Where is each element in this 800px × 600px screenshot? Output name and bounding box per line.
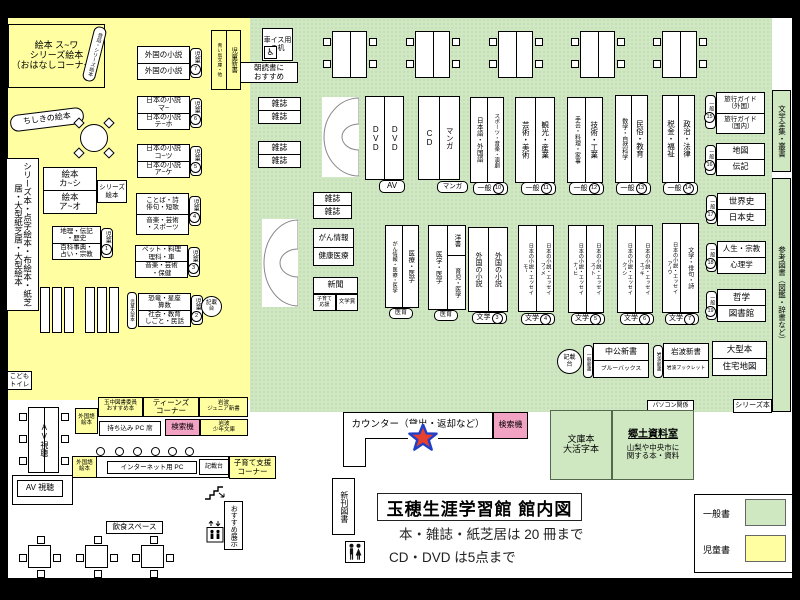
label-lit5: 文学5 bbox=[571, 313, 605, 325]
gaikokugo-ehon-2: 外国語 絵本 bbox=[72, 456, 97, 478]
iwanami-shelf-cell-2: 岩波ブックレット bbox=[664, 360, 708, 377]
label-av: AV bbox=[379, 180, 405, 193]
bunko-shelf: 文庫本 大活字本 bbox=[550, 410, 612, 480]
chair bbox=[94, 536, 102, 544]
ehon-kashi-shelf: 絵本 カ~シ絵本 ア~オ bbox=[43, 167, 97, 214]
shelf-g13-cell-2: 民俗・教育 bbox=[631, 96, 647, 182]
map-biography-shelf-cell-1: 地図 bbox=[717, 144, 764, 159]
kamishibai-shelf: シリーズ本・点字絵本・布絵本・紙芝居・大型紙芝居・大型絵本 bbox=[6, 158, 39, 311]
chair bbox=[406, 38, 414, 46]
shelf-g12-cell-1: 手芸・料理・家事 bbox=[568, 98, 585, 182]
label-g11: 一般11 bbox=[521, 182, 556, 195]
chair bbox=[653, 60, 661, 68]
eating-table-3 bbox=[141, 545, 164, 568]
bungakusho-box: 文学賞 bbox=[336, 294, 358, 311]
location-star bbox=[408, 424, 438, 452]
search-machine-1: 検索機 bbox=[493, 412, 528, 439]
lit5-shelf-cell-2: 日本の小説・エッセイ ス~ト bbox=[586, 226, 604, 312]
tab-jido-ogata: 児童大型本 bbox=[127, 292, 137, 329]
dvd-shelf-cell-2: DVD bbox=[384, 97, 403, 179]
legend-children-label: 児童書 bbox=[703, 543, 730, 556]
jido-shinsho-shelf-cell-1: 青い鳥文庫・他 bbox=[212, 31, 226, 89]
kodomo-toilet: こども トイレ bbox=[7, 371, 32, 390]
magazine-shelf-1: 雑誌雑誌 bbox=[258, 97, 301, 124]
tab-iwanami-shinsho: 岩波新書 bbox=[653, 345, 663, 378]
mochikomi-pc-box: 持ち込み PC 席 bbox=[99, 421, 161, 436]
shelf-g13-cell-1: 数学・自然科学 bbox=[616, 96, 631, 182]
newspaper-box: 新聞 bbox=[313, 277, 358, 294]
osusume-tenji-box: おすすめ展示 bbox=[224, 501, 243, 550]
map-biography-shelf-cell-2: 伝記 bbox=[717, 159, 764, 175]
label-g14: 一般14 bbox=[663, 182, 698, 195]
lit5-shelf-cell-1: 日本の小説・エッセイ ナ~ヒ bbox=[569, 226, 586, 312]
jp-novels-ma: 日本の小説 マ~日本の小説 テ~ホ bbox=[137, 96, 190, 130]
eating-table-1 bbox=[28, 545, 51, 568]
kosodate-shien-box: 子育て支援 コーナー bbox=[229, 456, 276, 479]
travel-guide-shelf: 旅行ガイド （外国）旅行ガイド （国内） bbox=[716, 92, 765, 134]
crescent-shelf-2 bbox=[262, 219, 298, 307]
elevator-icon bbox=[206, 519, 224, 543]
stairs-icon bbox=[204, 484, 226, 500]
philosophy-shelf: 哲学図書館 bbox=[717, 289, 766, 322]
history-shelf-cell-2: 日本史 bbox=[718, 209, 765, 225]
iwanami-shelf: 岩波新書岩波ブックレット bbox=[663, 343, 709, 378]
kyodo-room: 郷土資料室山梨や中央市に 関する本・資料 bbox=[612, 410, 694, 480]
pet-shelf-cell-1: ペット・料理 理科・車 bbox=[136, 246, 187, 261]
jp-novels-ma-cell-1: 日本の小説 マ~ bbox=[138, 97, 189, 113]
chair bbox=[699, 60, 707, 68]
chair bbox=[94, 570, 102, 578]
chair bbox=[103, 147, 114, 158]
tab-jido-5: 児童5 bbox=[190, 146, 202, 176]
life-religion-shelf-cell-2: 心理学 bbox=[718, 257, 765, 273]
lit4-shelf-cell-1: 日本の小説・エッセイ モ~ bbox=[519, 226, 536, 311]
geo-dictionary-shelf: 地理・伝記 ・歴史百科事典・ 占い・宗教 bbox=[52, 226, 101, 260]
chair bbox=[406, 60, 414, 68]
chair bbox=[150, 536, 158, 544]
chuko-shelf-cell-1: 中公新書 bbox=[594, 344, 648, 360]
lit4-shelf: 日本の小説・エッセイ モ~日本の小説・エッセイ フ~メ bbox=[518, 225, 554, 312]
shelf-g11-cell-1: 芸術・美術 bbox=[516, 98, 535, 182]
lit6-shelf: 日本の小説・エッセイ ク~シ日本の小説・エッセイ エ~キ bbox=[617, 225, 653, 313]
kotoba-shelf-cell-2: 音楽・芸術 ・スポーツ bbox=[137, 214, 188, 235]
tab-g17: 一般17 bbox=[706, 195, 717, 224]
tab-jido-3: 児童3 bbox=[188, 247, 200, 277]
map-title: 玉穂生涯学習館 館内図 bbox=[377, 493, 582, 521]
shelf-g14: 税金・福祉政治・法律 bbox=[662, 95, 695, 183]
jp-novels-ko-cell-2: 日本の小説 ア~ケ bbox=[138, 161, 189, 178]
legend-children-swatch bbox=[745, 535, 786, 562]
geo-dictionary-shelf-cell-2: 百科事典・ 占い・宗教 bbox=[53, 243, 100, 260]
stool-5 bbox=[168, 447, 177, 456]
lit6-shelf-cell-2: 日本の小説・エッセイ エ~キ bbox=[635, 226, 653, 312]
label-g12: 一般12 bbox=[569, 182, 604, 195]
lit6-shelf-cell-1: 日本の小説・エッセイ ク~シ bbox=[618, 226, 635, 312]
lit4-shelf-cell-2: 日本の小説・エッセイ フ~メ bbox=[536, 226, 554, 311]
jp-novels-ko: 日本の小説 コ~ツ日本の小説 ア~ケ bbox=[137, 144, 190, 178]
chair bbox=[37, 536, 45, 544]
chair bbox=[323, 38, 331, 46]
magazine-shelf-3-cell-1: 雑誌 bbox=[314, 193, 351, 205]
dinosaur-shelf: 恐竜・星座 算数社会・教育 しごと・民話 bbox=[138, 293, 191, 327]
toilet-icon-box bbox=[345, 541, 365, 563]
kisaidai-3: 記載台 bbox=[199, 459, 229, 475]
history-shelf: 世界史日本史 bbox=[717, 193, 766, 226]
lit3-shelf-cell-2: 外国の小説 bbox=[488, 228, 508, 311]
magazine-shelf-3: 雑誌雑誌 bbox=[313, 192, 352, 219]
philosophy-shelf-cell-2: 図書館 bbox=[718, 305, 765, 321]
tab-jido-6: 児童6 bbox=[190, 98, 202, 128]
lending-rule-cd-dvd: CD・DVD は5点まで bbox=[389, 546, 516, 566]
chair bbox=[103, 117, 114, 128]
chair bbox=[61, 457, 69, 465]
lending-rule-books: 本・雑誌・紙芝居は 20 冊まで bbox=[399, 523, 584, 543]
label-iiku-1: 医育 bbox=[389, 308, 413, 319]
cd-manga-shelf-cell-2: マンガ bbox=[439, 97, 460, 179]
chair bbox=[571, 38, 579, 46]
counter-ext bbox=[343, 438, 366, 467]
shelf-g14-cell-1: 税金・福祉 bbox=[663, 96, 678, 182]
label-manga: マンガ bbox=[437, 181, 468, 193]
chair bbox=[19, 554, 27, 562]
cd-manga-shelf: CDマンガ bbox=[418, 96, 460, 180]
jp-novels-ma-cell-2: 日本の小説 テ~ホ bbox=[138, 113, 189, 130]
label-lit4: 文学4 bbox=[521, 313, 555, 325]
chair bbox=[535, 38, 543, 46]
foreign-novels-children: 外国の小説外国の小説 bbox=[137, 46, 190, 80]
search-machine-2: 検索機 bbox=[165, 419, 200, 436]
lit3-shelf-cell-1: 外国の小説 bbox=[469, 228, 488, 311]
medical-shelf-1-cell-1: がん情報・医療・医学 bbox=[386, 226, 402, 307]
shelf-g11-cell-2: 観光・産業 bbox=[535, 98, 555, 182]
tab-ippan-shinsho: 一般新書 bbox=[583, 345, 593, 378]
life-religion-shelf-cell-1: 人生・宗教 bbox=[718, 242, 765, 257]
ehon-kashi-shelf-cell-2: 絵本 ア~オ bbox=[44, 190, 96, 213]
large-books-shelf-cell-1: 大型本 bbox=[713, 342, 766, 358]
shinkan-tosho-box: 新刊図書 bbox=[332, 478, 355, 535]
crescent-shelf-1 bbox=[322, 97, 359, 177]
shelf-g12-cell-2: 技術・工業 bbox=[585, 98, 603, 182]
iwanami-shonen-box: 岩波 少年文庫 bbox=[200, 419, 248, 436]
philosophy-shelf-cell-1: 哲学 bbox=[718, 290, 765, 305]
yosho-cell: 洋書 bbox=[447, 225, 466, 256]
legend-row-children: 児童書 bbox=[695, 535, 792, 565]
magazine-shelf-2-cell-1: 雑誌 bbox=[259, 142, 300, 154]
tab-jido-1: 児童1 bbox=[101, 228, 113, 258]
reading-table-1 bbox=[332, 31, 367, 78]
chair bbox=[489, 60, 497, 68]
jido-shinsho-shelf: 青い鳥文庫・他児童新書 bbox=[211, 30, 241, 90]
chuko-shelf: 中公新書ブルーバックス bbox=[593, 343, 649, 378]
map-biography-shelf: 地図伝記 bbox=[716, 143, 765, 176]
chair bbox=[535, 60, 543, 68]
chair bbox=[132, 554, 140, 562]
lit5-shelf: 日本の小説・エッセイ ナ~ヒ日本の小説・エッセイ ス~ト bbox=[568, 225, 604, 313]
tamachu-osusume-box: 玉中図書委員 おすすめ本 bbox=[98, 397, 143, 417]
shelf-g11: 芸術・美術観光・産業 bbox=[515, 97, 555, 183]
shelf-g10-cell-2: スポーツ・音楽・演劇 bbox=[487, 98, 504, 182]
magazine-shelf-3-cell-2: 雑誌 bbox=[314, 205, 351, 218]
series-ehon-box: シリーズ 絵本 bbox=[97, 180, 127, 203]
chair bbox=[53, 554, 61, 562]
geo-dictionary-shelf-cell-1: 地理・伝記 ・歴史 bbox=[53, 227, 100, 243]
shelf-block-5 bbox=[97, 287, 107, 333]
dinosaur-shelf-cell-1: 恐竜・星座 算数 bbox=[139, 294, 190, 310]
chair bbox=[653, 38, 661, 46]
medical-shelf-1: がん情報・医療・医学医療・医学 bbox=[385, 225, 419, 308]
pet-shelf: ペット・料理 理科・車音楽・芸術 ・保健 bbox=[135, 245, 188, 278]
chair bbox=[369, 60, 377, 68]
shelf-g10-cell-1: 日本語・外国語 bbox=[471, 98, 487, 182]
teens-corner-box: ティーンズ コーナー bbox=[143, 397, 199, 417]
chair bbox=[150, 570, 158, 578]
chair bbox=[73, 147, 84, 158]
chair bbox=[452, 60, 460, 68]
dvd-shelf: DVDDVD bbox=[365, 96, 404, 180]
tab-g15: 一般15 bbox=[705, 95, 716, 129]
chair bbox=[166, 554, 174, 562]
kisaidai-1: 記載 台 bbox=[201, 296, 222, 317]
dvd-shelf-cell-1: DVD bbox=[366, 97, 384, 179]
label-iiku-2: 医育 bbox=[434, 310, 458, 321]
shelf-g10: 日本語・外国語スポーツ・音楽・演劇 bbox=[470, 97, 504, 183]
library-floor-map: 絵本 ス~ワ シリーズ絵本 （おはなしコーナー）昔話・シリーズ絵本ちしきの絵本シ… bbox=[0, 0, 800, 600]
lit7-shelf-cell-2: 文学・俳句・詩 bbox=[680, 224, 698, 312]
kotoba-shelf-cell-1: ことば・詩 俳句・短歌 bbox=[137, 194, 188, 214]
chair bbox=[323, 60, 331, 68]
jido-shinsho-shelf-cell-2: 児童新書 bbox=[226, 31, 241, 89]
av-label-2: AV 視聴 bbox=[17, 480, 63, 497]
shelf-g13: 数学・自然科学民俗・教育 bbox=[615, 95, 648, 183]
stool-3 bbox=[133, 447, 142, 456]
label-g13: 一般13 bbox=[616, 182, 651, 195]
eating-table-2 bbox=[85, 545, 108, 568]
cancer-info-shelf-cell-1: がん情報 bbox=[314, 229, 353, 247]
sanko-tosho-shelf: 参考図書（図鑑・辞書など） bbox=[772, 178, 791, 412]
reading-table-3 bbox=[498, 31, 533, 78]
jp-novels-ko-cell-1: 日本の小説 コ~ツ bbox=[138, 145, 189, 161]
asadoku-box: 朝読書に おすすめ bbox=[240, 62, 298, 83]
kosodate-ouen-box: 子育て 応援 bbox=[313, 294, 336, 311]
chishiki-ehon-shelf: ちしきの絵本 bbox=[9, 107, 85, 133]
legend-general-swatch bbox=[745, 499, 786, 526]
cd-manga-shelf-cell-1: CD bbox=[419, 97, 439, 179]
medical-shelf-1-cell-2: 医療・医学 bbox=[402, 226, 419, 307]
chair bbox=[61, 413, 69, 421]
reading-table-4 bbox=[580, 31, 615, 78]
history-shelf-cell-1: 世界史 bbox=[718, 194, 765, 209]
eating-space-label: 飲食スペース bbox=[106, 521, 163, 534]
shelf-g14-cell-2: 政治・法律 bbox=[678, 96, 694, 182]
chair bbox=[571, 60, 579, 68]
stool-4 bbox=[151, 447, 160, 456]
reading-table-2 bbox=[415, 31, 450, 78]
bungaku-zenshu-shelf: 文学全集・叢書 bbox=[772, 90, 791, 172]
large-books-shelf-cell-2: 住宅地図 bbox=[713, 358, 766, 375]
story-room-table bbox=[80, 124, 108, 152]
chair bbox=[617, 60, 625, 68]
lit7-shelf-cell-1: 日本の小説・エッセイ ア~ウ bbox=[663, 224, 680, 312]
chair bbox=[37, 570, 45, 578]
series-bon-box: シリーズ本 bbox=[733, 399, 772, 413]
wheelchair-icon: ♿ bbox=[264, 46, 277, 59]
legend: 一般書 児童書 bbox=[694, 494, 793, 573]
map-title-text: 玉穂生涯学習館 館内図 bbox=[387, 495, 573, 520]
chair bbox=[617, 38, 625, 46]
chair bbox=[110, 554, 118, 562]
internet-pc-label: インターネット用 PC bbox=[107, 461, 197, 474]
av-table-label: AV視聴 bbox=[35, 416, 52, 464]
chair bbox=[452, 38, 460, 46]
lit7-shelf: 日本の小説・エッセイ ア~ウ文学・俳句・詩 bbox=[662, 223, 699, 313]
reading-table-5 bbox=[662, 31, 697, 78]
foreign-novels-children-cell-1: 外国の小説 bbox=[138, 47, 189, 63]
pet-shelf-cell-2: 音楽・芸術 ・保健 bbox=[136, 261, 187, 277]
tab-jido-4: 児童4 bbox=[189, 196, 201, 226]
chair bbox=[76, 554, 84, 562]
tab-g18: 一般18 bbox=[706, 243, 717, 272]
cancer-info-shelf: がん情報健康医療 bbox=[313, 228, 354, 266]
chair bbox=[19, 435, 27, 443]
legend-general-label: 一般書 bbox=[703, 507, 730, 520]
tab-g16: 一般16 bbox=[705, 145, 716, 175]
chair bbox=[489, 38, 497, 46]
magazine-shelf-1-cell-2: 雑誌 bbox=[259, 110, 300, 123]
magazine-shelf-2: 雑誌雑誌 bbox=[258, 141, 301, 168]
label-g10: 一般10 bbox=[473, 182, 508, 195]
iwanami-junior-box: 岩波 ジュニア新書 bbox=[199, 397, 248, 417]
cancer-info-shelf-cell-2: 健康医療 bbox=[314, 247, 353, 266]
gaikokugo-ehon-1: 外国語 絵本 bbox=[75, 408, 98, 434]
kisaidai-2: 記載 台 bbox=[557, 349, 582, 374]
travel-guide-shelf-cell-2: 旅行ガイド （国内） bbox=[717, 113, 764, 134]
chuko-shelf-cell-2: ブルーバックス bbox=[594, 360, 648, 377]
label-lit7: 文学7 bbox=[665, 313, 699, 325]
shelf-block-1 bbox=[40, 287, 50, 333]
shelf-block-4 bbox=[85, 287, 95, 333]
chair bbox=[19, 457, 27, 465]
magazine-shelf-2-cell-2: 雑誌 bbox=[259, 154, 300, 167]
ehon-kashi-shelf-cell-1: 絵本 カ~シ bbox=[44, 168, 96, 190]
chair bbox=[699, 38, 707, 46]
chair bbox=[61, 435, 69, 443]
lit3-shelf: 外国の小説外国の小説 bbox=[468, 227, 508, 312]
medical-shelf-2-cell-1: 医学・医学 bbox=[429, 226, 447, 309]
iwanami-shelf-cell-1: 岩波新書 bbox=[664, 344, 708, 360]
dinosaur-shelf-cell-2: 社会・教育 しごと・民話 bbox=[139, 310, 190, 327]
shelf-block-2 bbox=[52, 287, 62, 333]
foreign-novels-children-cell-2: 外国の小説 bbox=[138, 63, 189, 80]
shelf-block-3 bbox=[64, 287, 74, 333]
tab-g19: 一般19 bbox=[706, 291, 717, 320]
ikuji-cell: 育児・医学 bbox=[447, 256, 466, 309]
legend-row-general: 一般書 bbox=[695, 499, 792, 529]
label-lit6: 文学6 bbox=[620, 313, 654, 325]
chair bbox=[369, 38, 377, 46]
chair bbox=[19, 413, 27, 421]
magazine-shelf-1-cell-1: 雑誌 bbox=[259, 98, 300, 110]
large-books-shelf: 大型本住宅地図 bbox=[712, 341, 767, 376]
tab-jido-7: 児童7 bbox=[190, 48, 202, 78]
stool-1 bbox=[96, 447, 105, 456]
shelf-g12: 手芸・料理・家事技術・工業 bbox=[567, 97, 603, 183]
stool-6 bbox=[185, 447, 194, 456]
label-lit3: 文学3 bbox=[472, 312, 507, 324]
life-religion-shelf: 人生・宗教心理学 bbox=[717, 241, 766, 274]
kotoba-shelf: ことば・詩 俳句・短歌音楽・芸術 ・スポーツ bbox=[136, 193, 189, 235]
shelf-block-6 bbox=[109, 287, 119, 333]
stool-2 bbox=[115, 447, 124, 456]
travel-guide-shelf-cell-1: 旅行ガイド （外国） bbox=[717, 93, 764, 113]
